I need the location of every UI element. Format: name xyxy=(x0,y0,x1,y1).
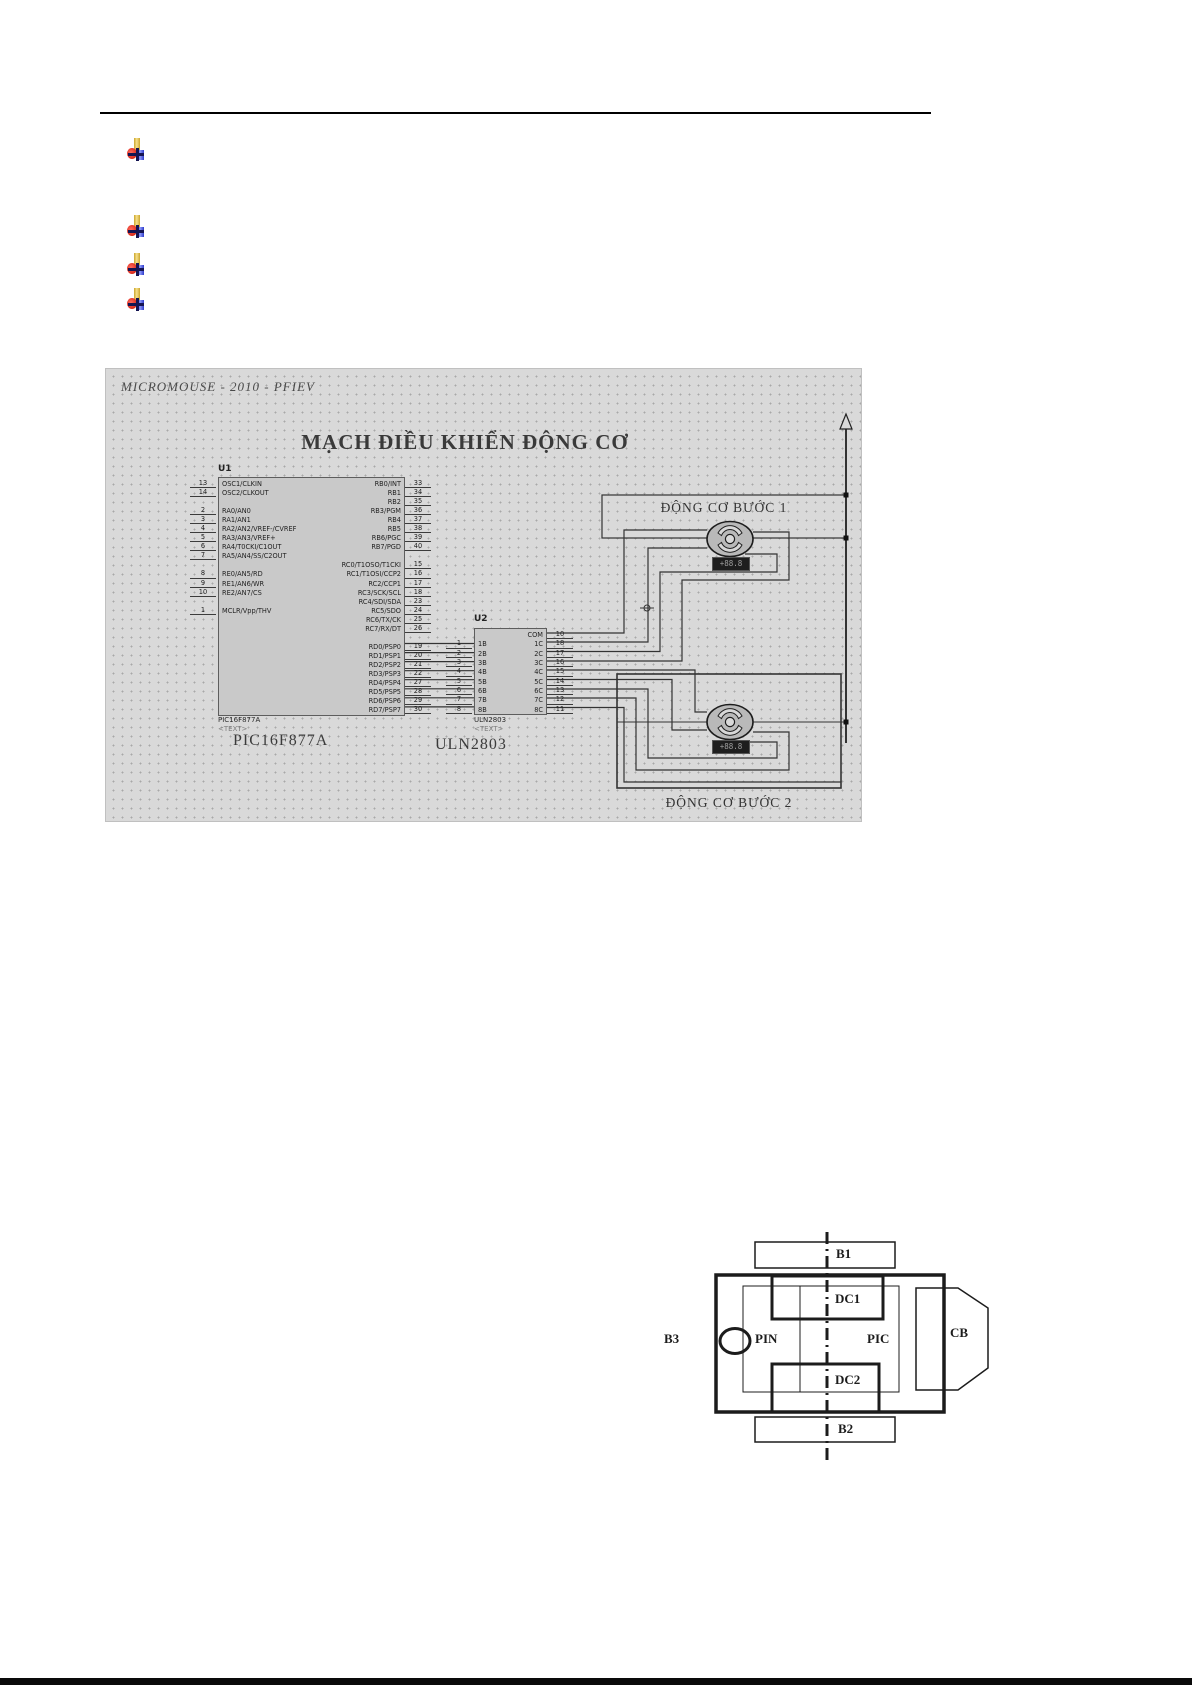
pin-label xyxy=(294,634,404,643)
pin-label: 8B xyxy=(475,706,509,715)
pin-number: 13 xyxy=(190,479,216,488)
pin-label: RB4 xyxy=(294,516,404,525)
u1-chip-body: OSC1/CLKINOSC2/CLKOUTRA0/AN0RA1/AN1RA2/A… xyxy=(218,477,405,716)
pin-number xyxy=(190,597,216,606)
pin-label: 4C xyxy=(510,668,546,677)
pin-label: 3C xyxy=(510,659,546,668)
pin-number xyxy=(190,560,216,569)
pin-number: 18 xyxy=(405,588,431,597)
pin-number: 7 xyxy=(446,695,472,704)
pin-label: 3B xyxy=(475,659,509,668)
stepper-motor-symbol xyxy=(707,522,753,557)
pin-number xyxy=(190,624,216,633)
b3-label: B3 xyxy=(664,1331,679,1347)
b1-label: B1 xyxy=(836,1246,851,1262)
pin-number: 14 xyxy=(190,488,216,497)
pin-number: 24 xyxy=(405,606,431,615)
u1-right-pin-labels: RB0/INTRB1RB2RB3/PGMRB4RB5RB6/PGCRB7/PGD… xyxy=(294,480,404,715)
pin-number xyxy=(190,633,216,642)
pin-number: 7 xyxy=(190,551,216,560)
pin-label: 1B xyxy=(475,640,509,649)
pin-number: 14 xyxy=(547,677,573,686)
dc1-label: DC1 xyxy=(835,1291,860,1307)
b2-label: B2 xyxy=(838,1421,853,1437)
schematic-image: MICROMOUSE - 2010 - PFIEV MẠCH ĐIỀU KHIỂ… xyxy=(105,368,862,822)
pin-number: 4 xyxy=(446,667,472,676)
pin-label: PIN xyxy=(755,1331,777,1347)
pin-label: RD7/PSP7 xyxy=(294,706,404,715)
pin-number: 26 xyxy=(405,624,431,633)
pin-label: RB7/PGD xyxy=(294,543,404,552)
u1-left-pin-numbers: 131423456789101 xyxy=(190,479,216,714)
pin-number: 10 xyxy=(547,630,573,639)
u2-chip-body: 1B2B3B4B5B6B7B8B COM1C2C3C4C5C6C7C8C xyxy=(474,628,547,715)
pin-number: 20 xyxy=(405,651,431,660)
pin-label: RC4/SDI/SDA xyxy=(294,598,404,607)
pin-number xyxy=(190,696,216,705)
pin-label: RC3/SCK/SCL xyxy=(294,589,404,598)
motor1-rpm-display: +88.8 xyxy=(712,557,750,571)
pin-label: 5C xyxy=(510,678,546,687)
pin-number xyxy=(190,678,216,687)
pin-number: 34 xyxy=(405,488,431,497)
u2-left-pin-labels: 1B2B3B4B5B6B7B8B xyxy=(475,631,509,715)
pin-label: RD3/PSP3 xyxy=(294,670,404,679)
pin-number: 39 xyxy=(405,533,431,542)
b1-box xyxy=(755,1242,895,1268)
u1-refdes: U1 xyxy=(218,464,232,474)
pin-number: 33 xyxy=(405,479,431,488)
robot-block-diagram: B1 DC1 B3 PIN PIC CB DC2 B2 xyxy=(616,1228,996,1468)
pin-number: 10 xyxy=(190,588,216,597)
pin-number: 8 xyxy=(190,569,216,578)
pin-label xyxy=(294,552,404,561)
pin-label: 7C xyxy=(510,696,546,705)
block-diagram-shapes xyxy=(616,1228,996,1468)
pin-number: 17 xyxy=(405,579,431,588)
motor1-label: ĐỘNG CƠ BƯỚC 1 xyxy=(602,500,846,516)
pin-label xyxy=(475,631,509,640)
pin-label: 2C xyxy=(510,650,546,659)
pin-number xyxy=(446,630,472,639)
u2-left-pin-numbers: 12345678 xyxy=(446,630,472,714)
pin-plus-icon xyxy=(127,288,147,312)
pin-number: 5 xyxy=(190,533,216,542)
pin-label: 6B xyxy=(475,687,509,696)
pin-number: 36 xyxy=(405,506,431,515)
pin-number xyxy=(190,660,216,669)
u1-part-name: PIC16F877A xyxy=(218,716,260,724)
cb-label: CB xyxy=(950,1325,968,1341)
pin-label: RB5 xyxy=(294,525,404,534)
pin-label: 6C xyxy=(510,687,546,696)
pin-circle xyxy=(720,1329,750,1354)
crosshair-marker-icon xyxy=(640,605,654,611)
pin-plus-icon xyxy=(127,253,147,277)
pin-number: 6 xyxy=(446,686,472,695)
pin-label: RB1 xyxy=(294,489,404,498)
pin-number: 4 xyxy=(190,524,216,533)
pin-label: 7B xyxy=(475,696,509,705)
pin-number: 35 xyxy=(405,497,431,506)
pin-number: 11 xyxy=(547,705,573,714)
top-rule xyxy=(100,112,931,114)
pin-label: RB3/PGM xyxy=(294,507,404,516)
pin-label: RD1/PSP1 xyxy=(294,652,404,661)
u1-right-pin-numbers: 3334353637383940151617182324252619202122… xyxy=(405,479,431,714)
pin-label: 8C xyxy=(510,706,546,715)
pin-number xyxy=(405,633,431,642)
pin-label: RC1/T1OSI/CCP2 xyxy=(294,570,404,579)
pin-number: 9 xyxy=(190,579,216,588)
pin-number: 2 xyxy=(190,506,216,515)
pin-label: RC2/CCP1 xyxy=(294,580,404,589)
pin-label: RB6/PGC xyxy=(294,534,404,543)
arrow-up-icon xyxy=(840,414,852,429)
pin-number: 2 xyxy=(446,649,472,658)
b2-box xyxy=(755,1417,895,1442)
pic-label: PIC xyxy=(867,1331,889,1347)
pin-number: 22 xyxy=(405,669,431,678)
pin-number: 13 xyxy=(547,686,573,695)
pin-number xyxy=(190,669,216,678)
pin-number: 27 xyxy=(405,678,431,687)
motor2-rpm-display: +88.8 xyxy=(712,740,750,754)
pin-label: RC6/TX/CK xyxy=(294,616,404,625)
pin-number: 6 xyxy=(190,542,216,551)
pin-label: RD2/PSP2 xyxy=(294,661,404,670)
u2-caption: ULN2803 xyxy=(435,736,507,754)
pin-number xyxy=(190,615,216,624)
pin-label: RD0/PSP0 xyxy=(294,643,404,652)
pin-label: 4B xyxy=(475,668,509,677)
pin-label: 1C xyxy=(510,640,546,649)
pin-number xyxy=(190,651,216,660)
pin-number: 28 xyxy=(405,687,431,696)
pin-number: 23 xyxy=(405,597,431,606)
pin-number: 5 xyxy=(446,677,472,686)
dc2-label: DC2 xyxy=(835,1372,860,1388)
pin-number: 3 xyxy=(446,658,472,667)
u2-part-name: ULN2803 xyxy=(474,716,506,724)
pin-label: RD4/PSP4 xyxy=(294,679,404,688)
pin-number: 30 xyxy=(405,705,431,714)
pin-number: 21 xyxy=(405,660,431,669)
pin-label: COM xyxy=(510,631,546,640)
pin-number xyxy=(190,642,216,651)
pin-label: RB0/INT xyxy=(294,480,404,489)
pin-label: RD6/PSP6 xyxy=(294,697,404,706)
pin-number: 15 xyxy=(547,667,573,676)
pin-number: 15 xyxy=(405,560,431,569)
pin-label: 2B xyxy=(475,650,509,659)
bottom-rule xyxy=(0,1678,1192,1685)
pin-plus-icon xyxy=(127,215,147,239)
pin-number xyxy=(190,687,216,696)
pin-number: 16 xyxy=(547,658,573,667)
pin-number: 1 xyxy=(190,606,216,615)
u2-text-placeholder: <TEXT> xyxy=(474,725,503,733)
u2-right-pin-labels: COM1C2C3C4C5C6C7C8C xyxy=(510,631,546,715)
pin-plus-icon xyxy=(127,138,147,162)
pin-label: RC0/T1OSO/T1CKI xyxy=(294,561,404,570)
pin-number: 16 xyxy=(405,569,431,578)
pin-number: 25 xyxy=(405,615,431,624)
pin-number: 29 xyxy=(405,696,431,705)
pin-number: 37 xyxy=(405,515,431,524)
document-page: { "icons": { "bullet": "pin-plus-icon", … xyxy=(0,0,1192,1685)
pin-number xyxy=(405,551,431,560)
pin-label: RD5/PSP5 xyxy=(294,688,404,697)
pin-label: RC5/SDO xyxy=(294,607,404,616)
pin-number: 3 xyxy=(190,515,216,524)
pin-number: 1 xyxy=(446,639,472,648)
pin-number: 12 xyxy=(547,695,573,704)
pin-number xyxy=(190,497,216,506)
pin-label: RC7/RX/DT xyxy=(294,625,404,634)
pin-label: 5B xyxy=(475,678,509,687)
pin-number: 8 xyxy=(446,705,472,714)
pin-label: RB2 xyxy=(294,498,404,507)
stepper-motor-symbol xyxy=(707,705,753,740)
u2-right-pin-numbers: 101817161514131211 xyxy=(547,630,573,714)
pin-number: 38 xyxy=(405,524,431,533)
pin-number xyxy=(190,705,216,714)
pin-number: 17 xyxy=(547,649,573,658)
pin-number: 19 xyxy=(405,642,431,651)
pin-number: 40 xyxy=(405,542,431,551)
pin-number: 18 xyxy=(547,639,573,648)
u2-refdes: U2 xyxy=(474,614,488,624)
u1-caption: PIC16F877A xyxy=(233,732,328,750)
motor2-label: ĐỘNG CƠ BƯỚC 2 xyxy=(617,795,841,811)
